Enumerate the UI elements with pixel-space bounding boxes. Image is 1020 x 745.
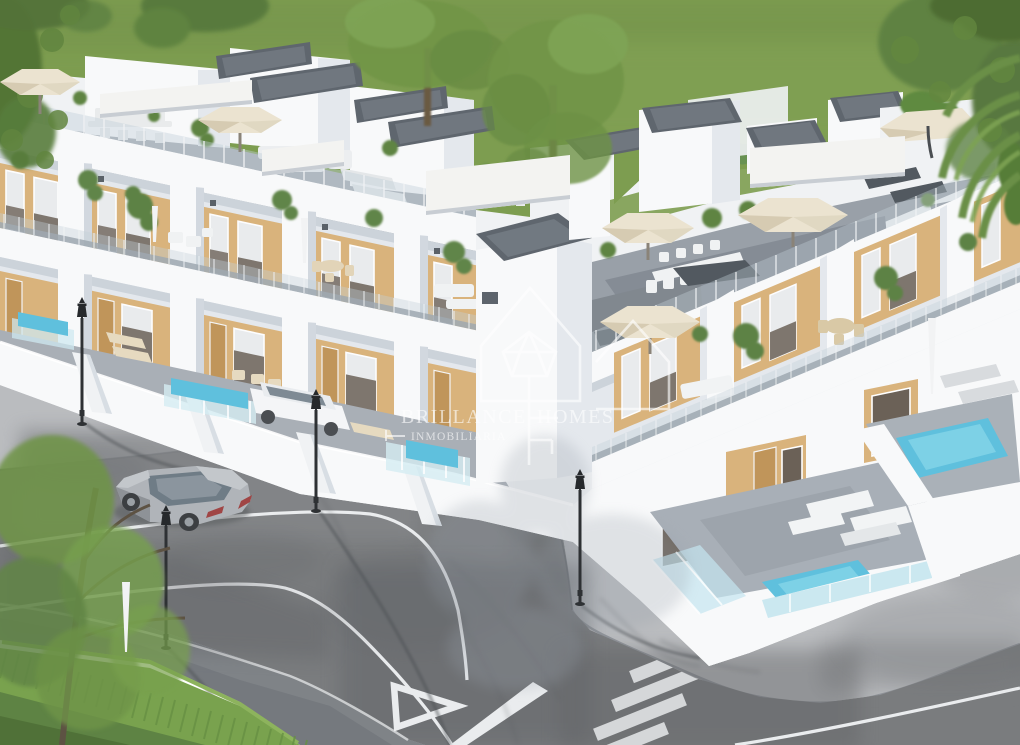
svg-text:HOMES: HOMES <box>537 406 615 428</box>
svg-text:INMOBILIARIA: INMOBILIARIA <box>411 431 507 443</box>
svg-text:BRILLANCE: BRILLANCE <box>401 406 527 428</box>
